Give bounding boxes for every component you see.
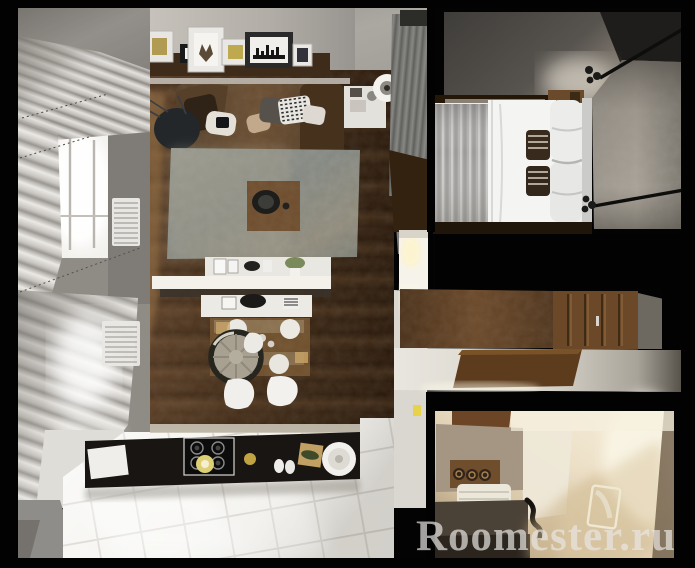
svg-text:Roomester.ru: Roomester.ru [416, 513, 676, 560]
